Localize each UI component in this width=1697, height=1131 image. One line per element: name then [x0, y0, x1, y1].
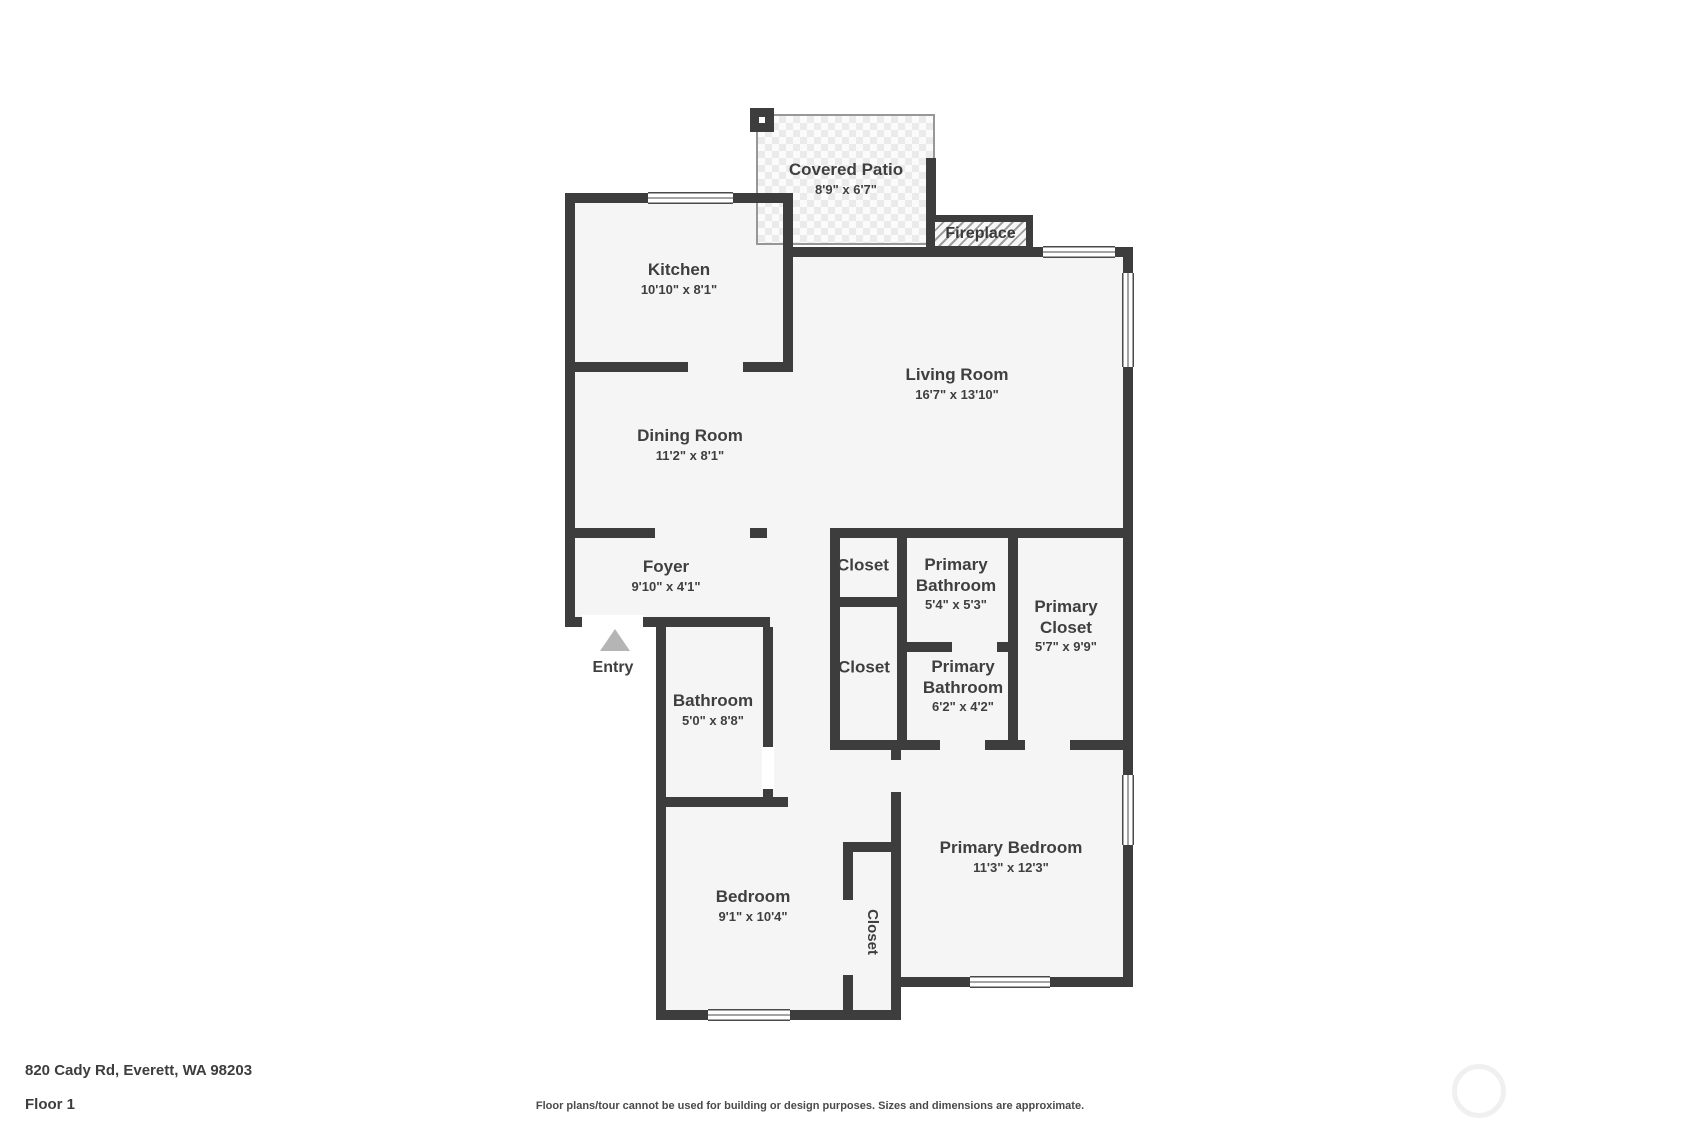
- patio-post: [750, 108, 774, 132]
- wall-foyer-top: [565, 528, 655, 538]
- wall-bedroom-closet-left-upper: [843, 852, 853, 900]
- room-label-foyer: Foyer 9'10" x 4'1": [631, 557, 700, 597]
- room-label-dining-room: Dining Room 11'2" x 8'1": [637, 426, 743, 466]
- wall-left: [565, 193, 575, 627]
- wall-bedroom-top: [656, 797, 788, 807]
- room-label-kitchen: Kitchen 10'10" x 8'1": [641, 260, 717, 300]
- room-label-closet-lower: Closet: [838, 658, 890, 679]
- room-label-closet-upper: Closet: [837, 556, 889, 577]
- wall-primary-bedroom-top-a: [830, 740, 940, 750]
- watermark-circle: [1452, 1064, 1506, 1118]
- address-text: 820 Cady Rd, Everett, WA 98203: [25, 1062, 252, 1079]
- floor-plan-canvas: Fireplace Entry Covered Patio 8'9" x 6'7…: [0, 0, 1697, 1131]
- room-label-primary-closet: Primary Closet 5'7" x 9'9": [1021, 597, 1111, 657]
- wall-foyer-top-stub: [750, 528, 767, 538]
- fireplace-label: Fireplace: [945, 225, 1015, 243]
- entry-arrow-icon: [600, 629, 630, 651]
- wall-kitchen-bottom-left: [565, 362, 688, 372]
- room-label-primary-bathroom-upper: Primary Bathroom 5'4" x 5'3": [904, 555, 1008, 615]
- wall-primary-bedroom-top-b: [985, 740, 1025, 750]
- wall-closet-divider: [830, 597, 907, 607]
- floor-label: Floor 1: [25, 1096, 75, 1113]
- room-label-living-room: Living Room 16'7" x 13'10": [906, 365, 1009, 405]
- room-label-bathroom: Bathroom 5'0" x 8'8": [673, 691, 753, 731]
- disclaimer-text: Floor plans/tour cannot be used for buil…: [520, 1100, 1100, 1112]
- window-living-top: [1043, 246, 1115, 258]
- room-label-primary-bedroom: Primary Bedroom 11'3" x 12'3": [940, 838, 1083, 878]
- fireplace: Fireplace: [928, 215, 1033, 253]
- window-bedroom-bottom: [708, 1009, 790, 1021]
- wall-primary-bedroom-left-lower: [891, 792, 901, 1020]
- window-primary-bedroom-bottom: [970, 976, 1050, 988]
- door-opening-entry: [582, 615, 643, 629]
- room-label-primary-bathroom-lower: Primary Bathroom 6'2" x 4'2": [908, 657, 1018, 717]
- window-kitchen: [648, 192, 733, 204]
- wall-bathroom-left: [656, 627, 666, 1020]
- room-label-bedroom-closet: Closet: [863, 909, 881, 955]
- room-label-bedroom: Bedroom 9'1" x 10'4": [716, 887, 791, 927]
- wall-living-bottom: [830, 528, 1133, 538]
- room-label-covered-patio: Covered Patio 8'9" x 6'7": [789, 160, 903, 200]
- window-living-right: [1122, 273, 1134, 367]
- door-opening-bathroom: [762, 747, 774, 789]
- wall-kitchen-right: [783, 193, 793, 372]
- wall-bedroom-closet-left-lower: [843, 975, 853, 1010]
- window-primary-bedroom-right: [1122, 775, 1134, 845]
- wall-primary-bedroom-left-upper: [891, 740, 901, 760]
- entry-label: Entry: [593, 659, 634, 677]
